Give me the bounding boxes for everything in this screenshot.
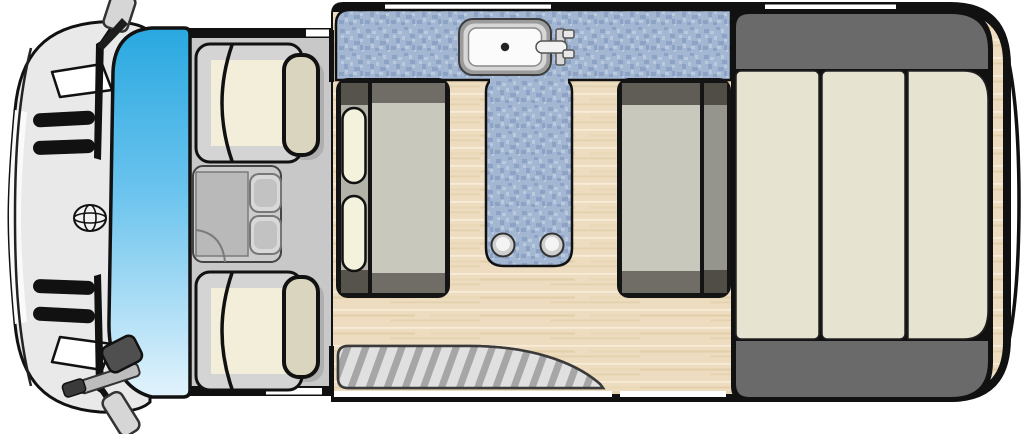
seat-headrest — [284, 277, 318, 377]
bench-backrest-cap — [341, 270, 368, 293]
bench-seat-base — [372, 83, 445, 293]
table-leg-inner — [545, 237, 559, 251]
bench-backrest-cap — [704, 83, 727, 105]
sink-drain-icon — [501, 43, 509, 51]
bench-seat-front — [336, 78, 450, 298]
bench-backrest-cap — [704, 270, 727, 293]
rear-bed — [731, 9, 993, 402]
center-console — [193, 166, 281, 262]
b-pillar — [329, 30, 334, 82]
door-seam — [334, 391, 612, 397]
cup-holder-inner — [254, 221, 277, 249]
passenger-seat — [196, 44, 324, 162]
driver-seat — [196, 272, 324, 390]
b-pillar — [329, 346, 334, 396]
bench-pillow — [343, 196, 366, 271]
door-seam — [306, 30, 329, 37]
cup-holder-inner — [254, 179, 277, 207]
bench-seat-rear — [617, 78, 731, 298]
bench-band — [372, 273, 445, 293]
console-table-panel — [196, 172, 248, 256]
bed-cushion — [736, 71, 819, 339]
grille-slat-icon — [33, 279, 95, 295]
table-leg-inner — [496, 237, 510, 251]
bed-cushion — [822, 71, 905, 339]
bench-band — [622, 271, 700, 293]
cab-section — [182, 28, 334, 396]
bench-pillow — [343, 108, 366, 183]
kitchen-area — [336, 10, 731, 80]
door-seam — [620, 391, 726, 397]
bench-seat-base — [622, 83, 700, 293]
campervan-floorplan — [0, 0, 1024, 434]
bed-cushion — [908, 71, 988, 339]
floorplan-canvas — [0, 0, 1024, 434]
dinette-table — [486, 77, 572, 267]
bed-bolster-top — [736, 14, 988, 69]
table-counter-join — [490, 77, 568, 85]
bench-band — [372, 83, 445, 103]
bed-cushions — [736, 71, 988, 339]
bench-band — [622, 83, 700, 105]
bed-bolster-bottom — [736, 341, 988, 397]
brand-emblem — [74, 205, 106, 231]
bench-backrest — [704, 83, 727, 293]
grille-slat-icon — [33, 139, 95, 155]
bench-backrest-cap — [341, 83, 368, 105]
seat-headrest — [284, 55, 318, 155]
